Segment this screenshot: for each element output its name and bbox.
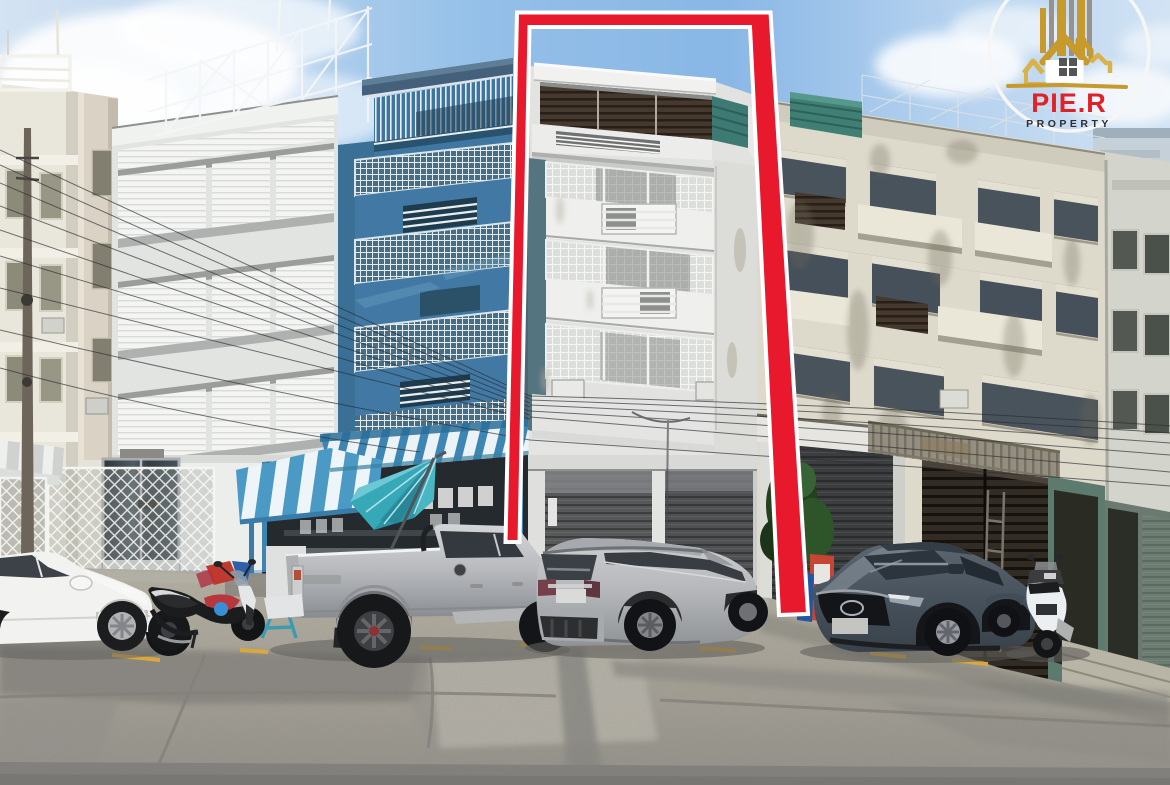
svg-text:PIE.R: PIE.R bbox=[1031, 88, 1107, 118]
svg-text:PROPERTY: PROPERTY bbox=[1026, 118, 1112, 130]
